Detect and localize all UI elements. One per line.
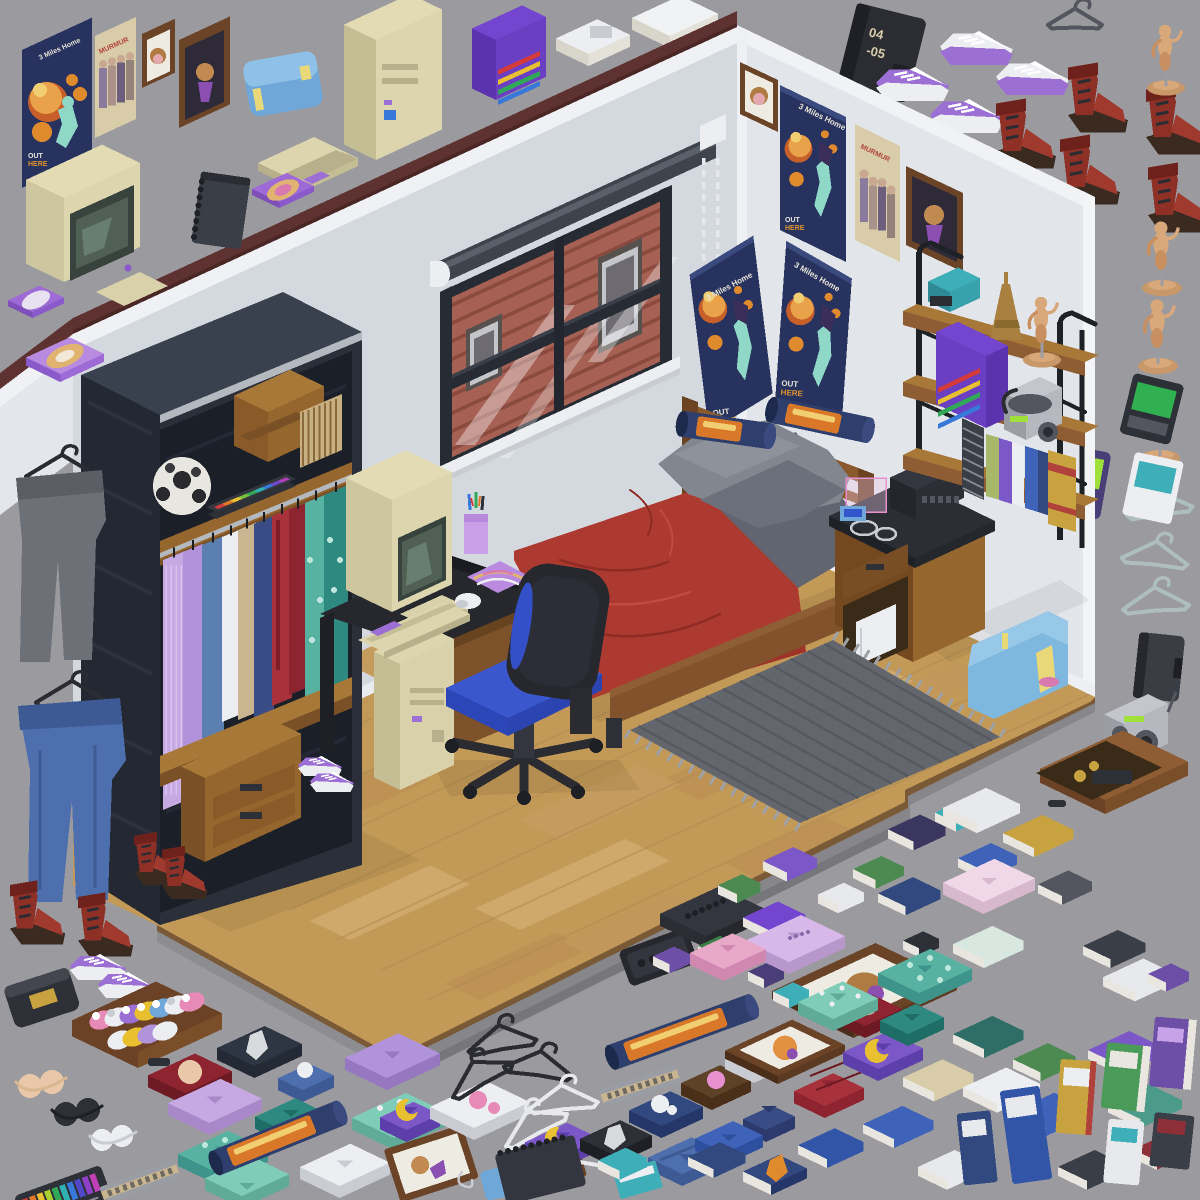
svg-text:HERE: HERE — [780, 388, 803, 399]
svg-text:HERE: HERE — [28, 161, 48, 168]
svg-text:OUT: OUT — [28, 153, 44, 160]
svg-text:HERE: HERE — [785, 225, 805, 232]
svg-text:OUT: OUT — [785, 217, 801, 224]
